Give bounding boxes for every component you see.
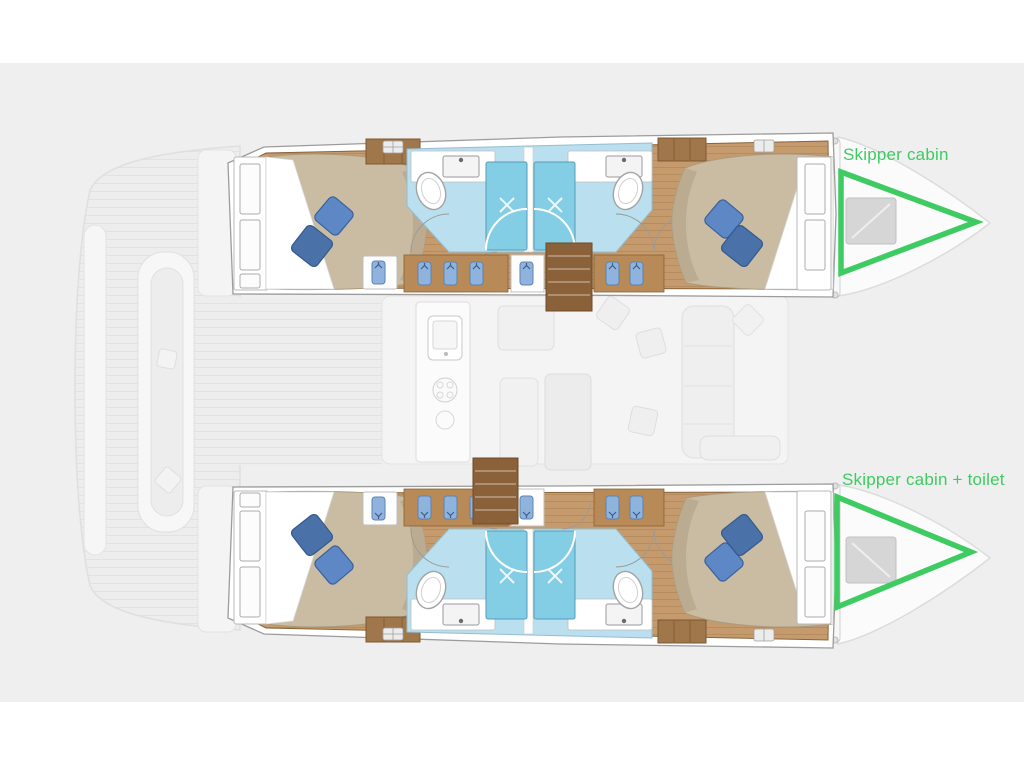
catamaran-floorplan (0, 0, 1024, 768)
stairs-icon (473, 458, 518, 524)
dining-table-icon (545, 374, 591, 470)
floorplan-page: Skipper cabin Skipper cabin + toilet (0, 0, 1024, 768)
skipper-cabin-label: Skipper cabin (843, 145, 949, 165)
galley-sink-icon (428, 316, 462, 360)
skipper-cabin-toilet-label: Skipper cabin + toilet (842, 470, 1005, 490)
chair (628, 406, 659, 437)
stairs-icon (546, 243, 592, 311)
hull-bottom (228, 483, 990, 648)
bench-seat (700, 436, 780, 460)
saloon (382, 295, 788, 470)
galley-island (498, 306, 554, 350)
sofa (682, 306, 734, 458)
cockpit-table (138, 252, 194, 532)
bench-seat (500, 378, 538, 466)
